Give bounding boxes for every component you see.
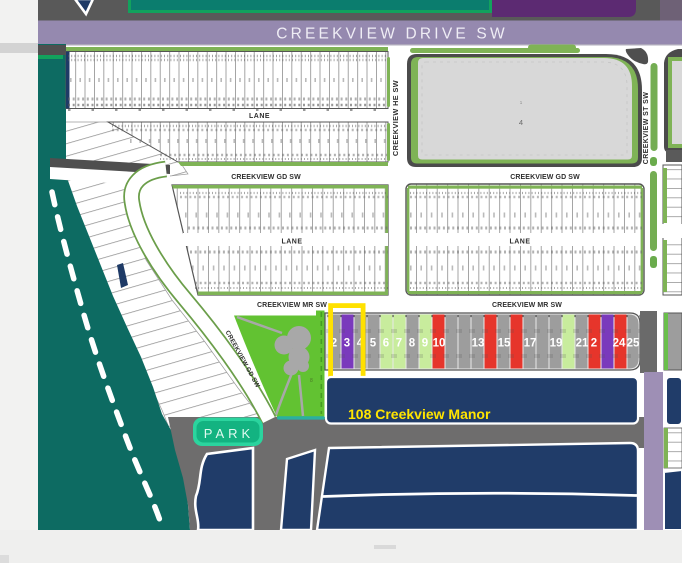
svg-text:25: 25	[627, 338, 640, 350]
svg-text:8: 8	[409, 338, 416, 350]
svg-text:21: 21	[576, 338, 589, 350]
svg-text:108 Creekview Manor: 108 Creekview Manor	[348, 406, 491, 422]
svg-text:24: 24	[613, 338, 626, 350]
svg-text:17: 17	[524, 338, 537, 350]
svg-text:9: 9	[422, 338, 428, 350]
svg-text:2: 2	[591, 338, 597, 350]
svg-text:13: 13	[472, 338, 485, 350]
svg-text:CREEKVIEW MR SW: CREEKVIEW MR SW	[492, 302, 562, 309]
svg-text:7: 7	[396, 338, 402, 350]
svg-text:CREEKVIEW GD SW: CREEKVIEW GD SW	[510, 174, 580, 181]
svg-text:6: 6	[383, 338, 389, 350]
svg-text:15: 15	[498, 338, 511, 350]
svg-text:LANE: LANE	[249, 113, 270, 120]
svg-text:LANE: LANE	[509, 239, 530, 246]
svg-text:8: 8	[310, 378, 313, 384]
svg-text:10: 10	[433, 338, 446, 350]
svg-text:CREEKVIEW HE SW: CREEKVIEW HE SW	[391, 80, 400, 156]
svg-text:5: 5	[370, 338, 377, 350]
svg-text:CREEKVIEW DRIVE SW: CREEKVIEW DRIVE SW	[276, 26, 508, 43]
svg-text:19: 19	[550, 338, 563, 350]
svg-text:4: 4	[519, 118, 523, 127]
svg-text:3: 3	[344, 338, 350, 350]
svg-text:CREEKVIEW GD SW: CREEKVIEW GD SW	[231, 174, 301, 181]
svg-text:LANE: LANE	[281, 239, 302, 246]
svg-text:PARK: PARK	[204, 426, 254, 441]
svg-text:CREEKVIEW MR SW: CREEKVIEW MR SW	[257, 302, 327, 309]
svg-text:CREEKVIEW ST SW: CREEKVIEW ST SW	[643, 92, 650, 165]
